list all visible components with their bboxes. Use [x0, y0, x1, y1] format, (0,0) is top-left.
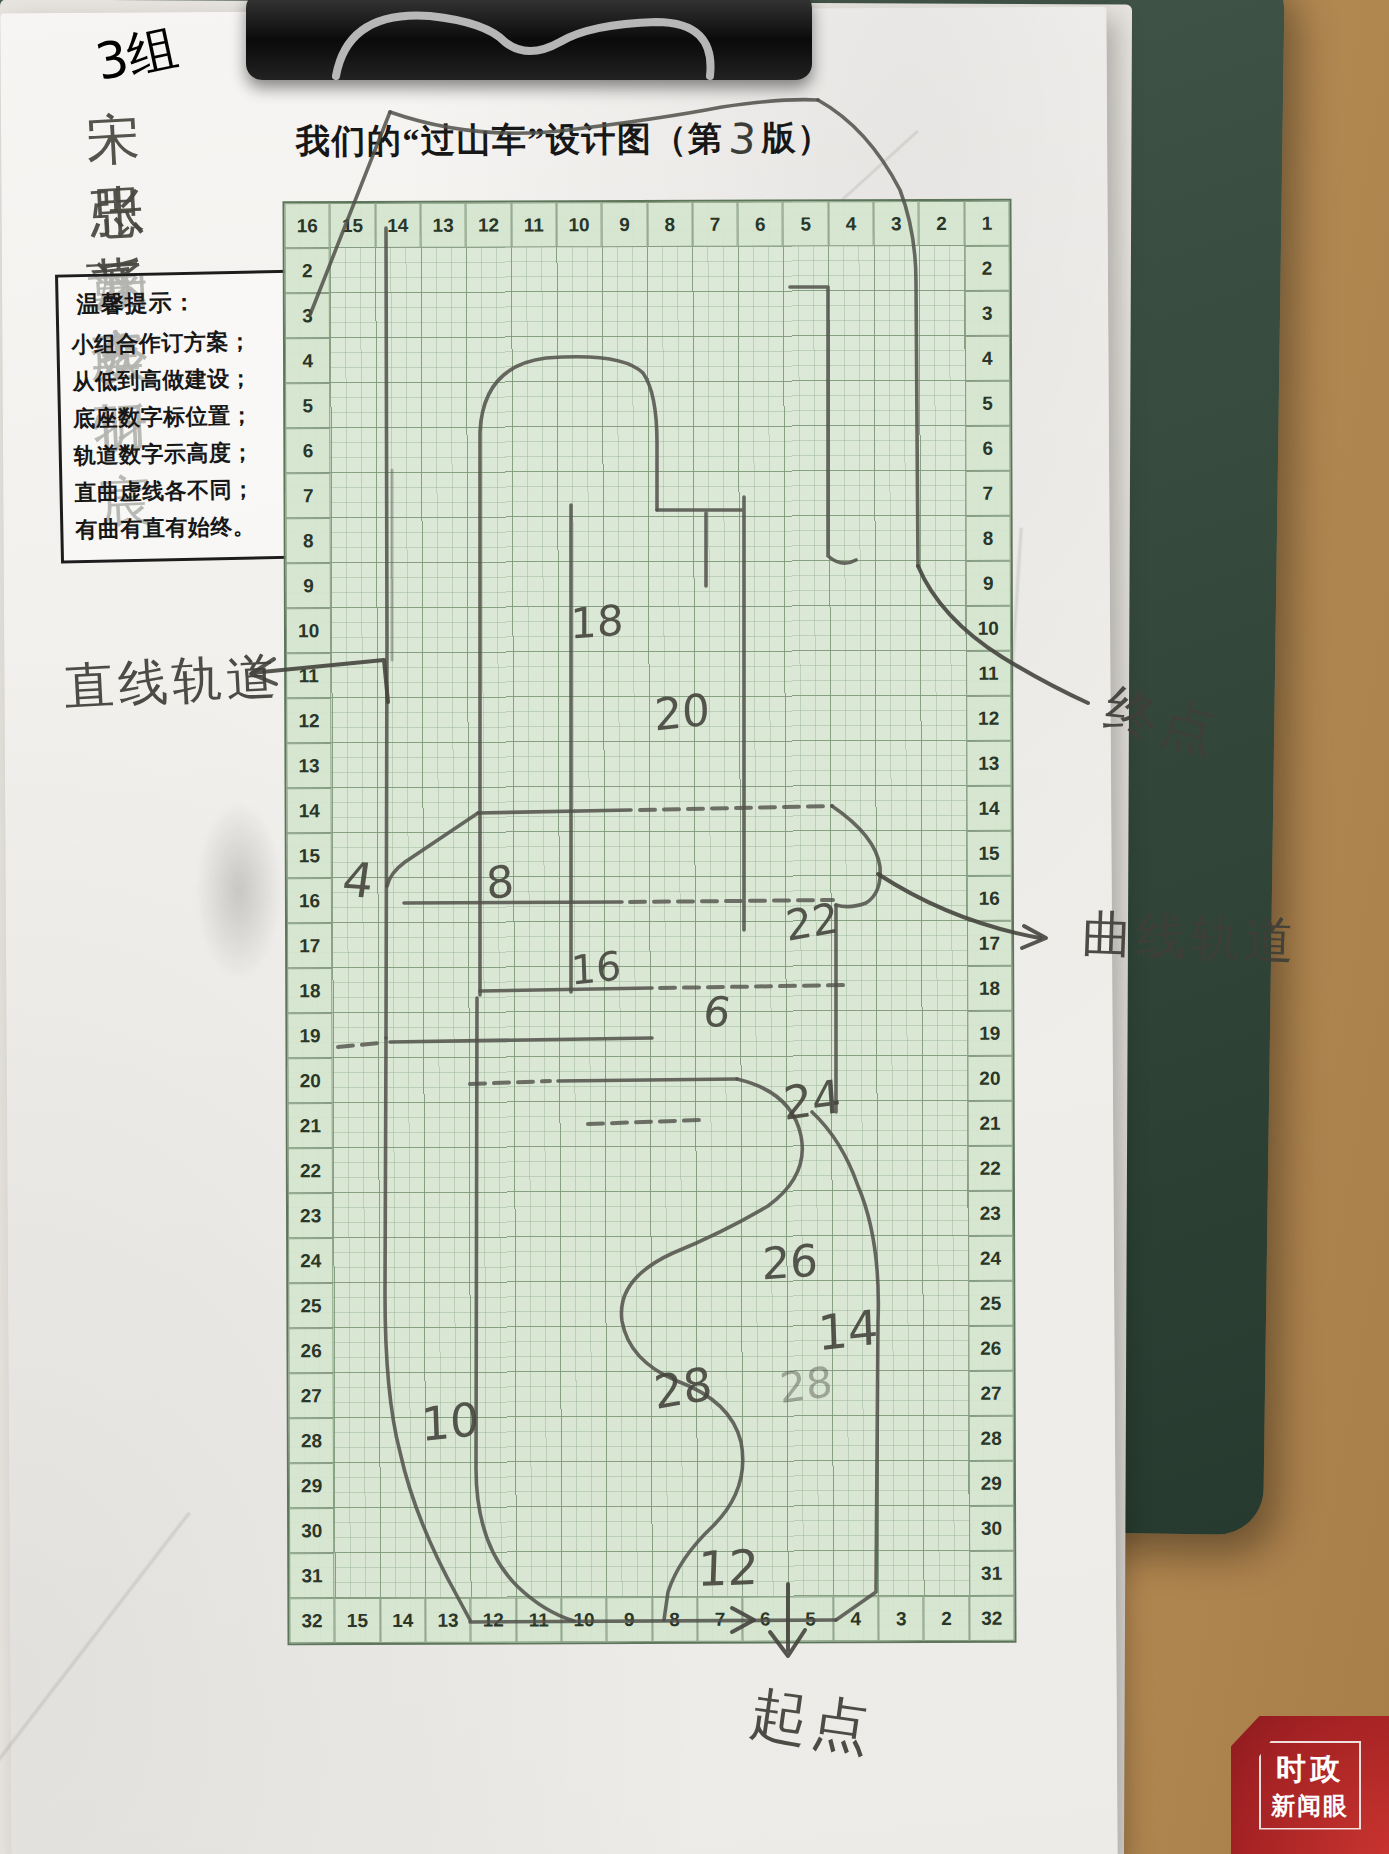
grid-label: 2 — [964, 246, 1009, 291]
clipboard-clip — [246, 0, 812, 80]
tips-line: 有曲有直有始终。 — [75, 507, 294, 549]
grid-label: 17 — [287, 923, 332, 968]
grid-label: 8 — [652, 1597, 697, 1642]
track-height-number: 8 — [484, 855, 515, 910]
grid-label: 31 — [969, 1551, 1014, 1596]
grid-label: 11 — [516, 1597, 561, 1642]
grid-label: 13 — [425, 1598, 470, 1643]
grid-label: 27 — [289, 1373, 334, 1418]
grid-label: 8 — [647, 202, 692, 247]
pencil-smudge — [196, 800, 282, 980]
tips-line: 小组合作订方案； — [71, 322, 290, 364]
track-height-number: 20 — [653, 684, 710, 741]
watermark-badge: 时政 新闻眼 — [1231, 1716, 1389, 1854]
grid-label: 30 — [289, 1508, 334, 1553]
grid-label: 16 — [967, 876, 1012, 921]
track-height-number: 12 — [696, 1539, 759, 1597]
grid-label: 3 — [964, 291, 1009, 336]
title-post: 版） — [762, 119, 833, 156]
grid-label: 24 — [968, 1236, 1013, 1281]
grid-label: 14 — [380, 1598, 425, 1643]
tips-line: 底座数字标位置； — [73, 396, 292, 438]
track-height-number: 22 — [783, 893, 841, 951]
design-grid: 1615141312111098765432132151413121110987… — [282, 199, 1016, 1646]
grid-label: 22 — [967, 1146, 1012, 1191]
grid-label: 2 — [924, 1596, 969, 1641]
grid-label: 32 — [289, 1598, 334, 1643]
grid-label: 15 — [966, 831, 1011, 876]
track-height-number: 14 — [817, 1299, 880, 1361]
sheet-title: 我们的“过山车”设计图（第3版） — [296, 114, 833, 167]
grid-label: 3 — [874, 201, 919, 246]
watermark-frame: 时政 新闻眼 — [1259, 1741, 1361, 1830]
grid-label: 10 — [561, 1597, 606, 1642]
grid-label: 6 — [965, 426, 1010, 471]
grid-label: 7 — [965, 471, 1010, 516]
grid-label: 19 — [287, 1013, 332, 1058]
grid-label: 6 — [285, 428, 330, 473]
grid-label: 13 — [286, 743, 331, 788]
track-height-number: 26 — [762, 1234, 818, 1289]
grid-label: 23 — [288, 1193, 333, 1238]
grid-label: 11 — [966, 651, 1011, 696]
track-height-number: 18 — [570, 596, 623, 649]
grid-label: 26 — [968, 1326, 1013, 1371]
grid-label: 9 — [607, 1597, 652, 1642]
grid-label: 26 — [288, 1328, 333, 1373]
grid-label: 3 — [878, 1596, 923, 1641]
grid-label: 5 — [788, 1596, 833, 1641]
grid-label: 20 — [967, 1056, 1012, 1101]
grid-label: 14 — [966, 786, 1011, 831]
grid-label: 29 — [289, 1463, 334, 1508]
grid-label: 29 — [969, 1461, 1014, 1506]
track-height-number: 10 — [420, 1392, 480, 1452]
grid-label: 3 — [285, 293, 330, 338]
annotation-straight-track: 直线轨道 — [62, 643, 281, 721]
tips-line: 轨道数字示高度； — [73, 433, 292, 475]
grid-label: 1 — [964, 201, 1009, 246]
grid-label: 8 — [286, 518, 331, 563]
grid-label: 22 — [288, 1148, 333, 1193]
grid-label: 4 — [285, 338, 330, 383]
grid-label: 5 — [783, 201, 828, 246]
grid-label: 14 — [287, 788, 332, 833]
watermark-line2: 新闻眼 — [1271, 1790, 1349, 1822]
grid-label: 7 — [697, 1597, 742, 1642]
grid-label: 28 — [968, 1416, 1013, 1461]
track-height-number: 24 — [781, 1069, 843, 1131]
grid-label: 13 — [420, 203, 465, 248]
grid-label: 9 — [286, 563, 331, 608]
grid-label: 7 — [285, 473, 330, 518]
track-height-number: 28 — [651, 1356, 714, 1420]
annotation-curved-track: 曲线轨道 — [1081, 901, 1299, 975]
grid-label: 32 — [969, 1596, 1014, 1641]
tips-title: 温馨提示： — [76, 285, 289, 320]
grid-label: 18 — [967, 966, 1012, 1011]
grid-label: 12 — [471, 1597, 516, 1642]
grid-label: 28 — [289, 1418, 334, 1463]
grid-label: 21 — [967, 1101, 1012, 1146]
grid-label: 18 — [287, 968, 332, 1013]
grid-label: 8 — [965, 516, 1010, 561]
grid-label: 4 — [833, 1596, 878, 1641]
grid-label: 9 — [965, 561, 1010, 606]
grid-label: 21 — [288, 1103, 333, 1148]
track-height-number: 16 — [570, 942, 622, 993]
grid-label: 2 — [919, 201, 964, 246]
grid-label: 16 — [287, 878, 332, 923]
grid-label: 10 — [966, 606, 1011, 651]
grid-label: 12 — [966, 696, 1011, 741]
photo-of-clipboard-design-sheet: { "title": {"pre": "我们的“过山车”设计图（第", "num… — [0, 0, 1389, 1854]
grid-label: 9 — [602, 202, 647, 247]
grid-label: 16 — [284, 203, 329, 248]
grid-label: 23 — [968, 1191, 1013, 1236]
grid-label: 10 — [556, 202, 601, 247]
grid-label: 10 — [286, 608, 331, 653]
grid-label: 25 — [968, 1281, 1013, 1326]
grid-label: 19 — [967, 1011, 1012, 1056]
grid-label: 11 — [286, 653, 331, 698]
grid-label: 5 — [965, 381, 1010, 426]
grid-label: 6 — [738, 202, 783, 247]
tips-line: 直曲虚线各不同； — [74, 470, 293, 512]
grid-label: 15 — [335, 1598, 380, 1643]
grid-label: 12 — [286, 698, 331, 743]
tips-line: 从低到高做建设； — [72, 359, 291, 401]
grid-label: 11 — [511, 202, 556, 247]
grid-label: 7 — [692, 202, 737, 247]
grid-label: 25 — [288, 1283, 333, 1328]
grid-label: 4 — [828, 201, 873, 246]
grid-label: 31 — [289, 1553, 334, 1598]
grid-label: 2 — [285, 248, 330, 293]
grid-label: 12 — [466, 202, 511, 247]
paper-crease — [0, 1511, 192, 1816]
grid-label: 30 — [969, 1506, 1014, 1551]
grid-label: 15 — [287, 833, 332, 878]
grid-label: 24 — [288, 1238, 333, 1283]
title-handwritten-version-number: 3 — [721, 113, 764, 165]
grid-label: 27 — [968, 1371, 1013, 1416]
grid-label: 5 — [285, 383, 330, 428]
tips-box: 温馨提示： 小组合作订方案；从低到高做建设；底座数字标位置；轨道数字示高度；直曲… — [55, 269, 309, 563]
watermark-line1: 时政 — [1271, 1749, 1349, 1790]
title-pre: 我们的“过山车”设计图（第 — [296, 120, 724, 160]
grid-label: 17 — [967, 921, 1012, 966]
grid-label: 20 — [287, 1058, 332, 1103]
grid-label: 4 — [965, 336, 1010, 381]
grid-label: 6 — [742, 1597, 787, 1642]
grid-label: 15 — [330, 203, 375, 248]
grid-label: 14 — [375, 203, 420, 248]
grid-label: 13 — [966, 741, 1011, 786]
track-height-number: 28 — [778, 1357, 834, 1413]
